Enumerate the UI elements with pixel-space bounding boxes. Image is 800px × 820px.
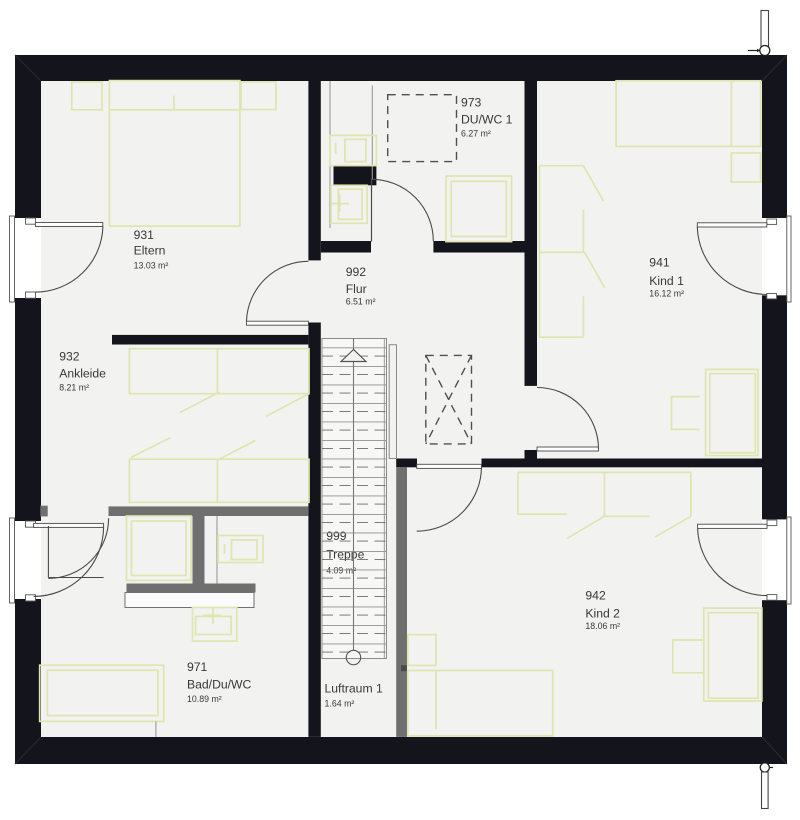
svg-text:6.51 m²: 6.51 m² xyxy=(346,297,376,307)
svg-text:18.06 m²: 18.06 m² xyxy=(585,621,620,631)
svg-text:992: 992 xyxy=(346,265,367,279)
svg-text:16.12 m²: 16.12 m² xyxy=(649,289,684,299)
svg-text:6.27 m²: 6.27 m² xyxy=(461,129,491,139)
svg-text:Kind 2: Kind 2 xyxy=(585,607,620,621)
svg-text:Flur: Flur xyxy=(346,282,367,296)
svg-text:971: 971 xyxy=(187,660,208,674)
svg-text:973: 973 xyxy=(461,96,482,110)
svg-text:1.64 m²: 1.64 m² xyxy=(325,698,355,708)
svg-text:Luftraum 1: Luftraum 1 xyxy=(325,682,383,696)
svg-text:941: 941 xyxy=(649,255,670,269)
svg-text:Eltern: Eltern xyxy=(134,244,166,258)
svg-text:931: 931 xyxy=(134,228,155,242)
svg-text:Bad/Du/WC: Bad/Du/WC xyxy=(187,677,252,691)
svg-text:13.03 m²: 13.03 m² xyxy=(134,261,169,271)
svg-text:Kind 1: Kind 1 xyxy=(649,274,684,288)
svg-text:942: 942 xyxy=(585,588,606,602)
svg-text:932: 932 xyxy=(59,350,80,364)
svg-text:10.89 m²: 10.89 m² xyxy=(187,694,222,704)
svg-text:8.21 m²: 8.21 m² xyxy=(59,383,89,393)
svg-text:DU/WC 1: DU/WC 1 xyxy=(461,113,513,127)
svg-text:Ankleide: Ankleide xyxy=(59,367,106,381)
svg-text:4.09 m²: 4.09 m² xyxy=(326,566,356,576)
